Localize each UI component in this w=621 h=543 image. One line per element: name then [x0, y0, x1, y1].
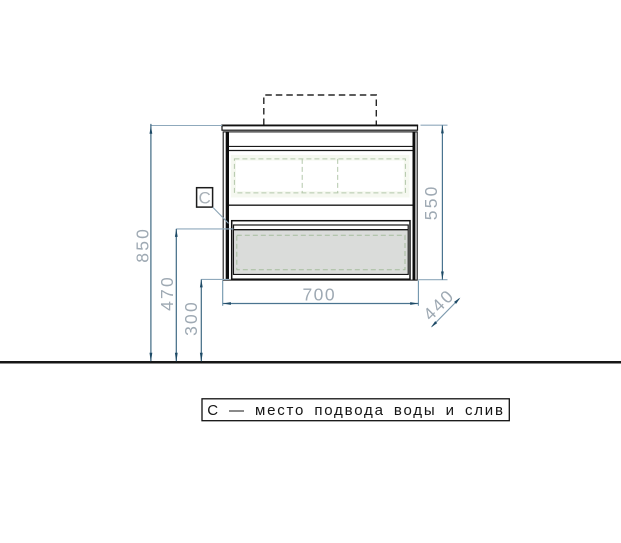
- svg-text:300: 300: [181, 300, 201, 336]
- svg-text:С — место подвода воды и слив: С — место подвода воды и слив: [207, 402, 505, 419]
- svg-text:550: 550: [421, 184, 441, 220]
- svg-text:440: 440: [419, 285, 458, 324]
- svg-text:850: 850: [133, 227, 153, 263]
- svg-text:470: 470: [157, 275, 177, 311]
- svg-text:C: C: [198, 188, 210, 207]
- svg-text:700: 700: [302, 285, 336, 305]
